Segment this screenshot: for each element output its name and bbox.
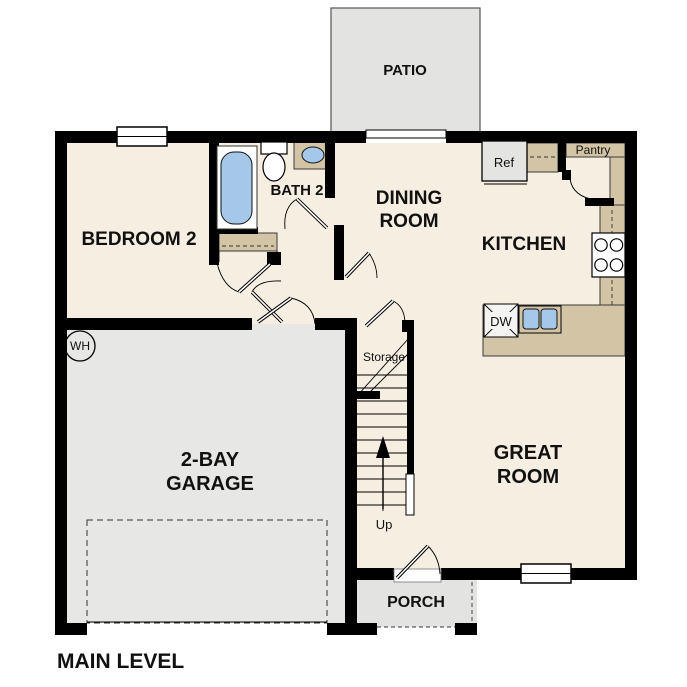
kitchen-sink	[519, 306, 561, 333]
stair-railing	[406, 474, 414, 515]
porch-label: PORCH	[387, 594, 445, 611]
dw-label: DW	[490, 314, 512, 329]
greatroom-label-line2: ROOM	[497, 466, 559, 488]
water-heater-label: WH	[70, 339, 90, 353]
dining-label-line2: ROOM	[379, 211, 438, 232]
dining-label-line1: DINING	[376, 188, 443, 209]
kitchen-label: KITCHEN	[482, 234, 566, 255]
garage-label-line2: GARAGE	[166, 473, 254, 495]
pantry-shelf-side	[610, 157, 625, 205]
closet-shelf	[219, 233, 277, 251]
ref-label: Ref	[494, 155, 515, 170]
greatroom-label-line1: GREAT	[494, 442, 563, 464]
bedroom2-label: BEDROOM 2	[81, 229, 196, 250]
patio-sliding-door	[366, 130, 446, 143]
floor-plan-page: WH	[0, 0, 687, 687]
counter-top	[527, 143, 558, 172]
bedroom-window	[117, 127, 167, 146]
patio-label: PATIO	[383, 62, 427, 79]
storage-label: Storage	[363, 350, 405, 364]
toilet	[261, 142, 287, 181]
bathtub	[217, 146, 257, 229]
bath-sink	[302, 147, 324, 163]
floor-plan: WH	[0, 0, 687, 687]
pantry-label: Pantry	[576, 143, 611, 157]
stove	[592, 233, 625, 277]
garage-label-line1: 2-BAY	[181, 449, 240, 471]
plan-title: MAIN LEVEL	[57, 650, 184, 673]
bath2-label: BATH 2	[270, 182, 323, 199]
up-label: Up	[376, 517, 393, 532]
greatroom-window	[521, 564, 571, 583]
